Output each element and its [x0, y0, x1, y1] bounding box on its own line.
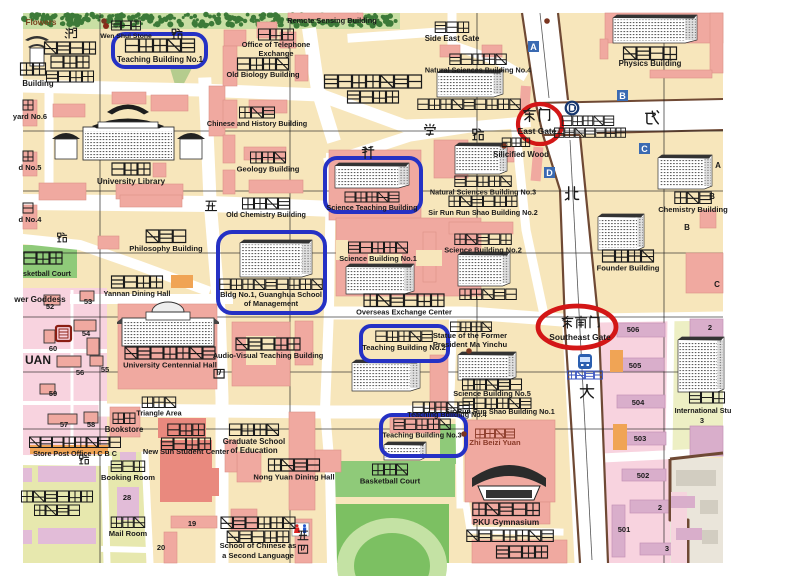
svg-text:Bldg No.1, Guanghua School: Bldg No.1, Guanghua School: [220, 290, 322, 299]
svg-text:A: A: [715, 161, 721, 170]
svg-text:2: 2: [658, 503, 662, 512]
svg-text:Science Teaching Building: Science Teaching Building: [327, 203, 418, 212]
svg-text:Exchange: Exchange: [259, 49, 294, 58]
svg-text:59: 59: [49, 389, 57, 398]
svg-text:502: 502: [637, 471, 650, 480]
svg-text:Booking Room: Booking Room: [101, 473, 155, 482]
svg-text:of Education: of Education: [230, 446, 277, 455]
svg-text:Office of Telephone: Office of Telephone: [242, 40, 310, 49]
svg-text:Teaching Building No.3: Teaching Building No.3: [382, 431, 461, 440]
svg-text:52: 52: [46, 302, 54, 311]
svg-text:Building: Building: [22, 79, 53, 88]
svg-text:C: C: [641, 144, 648, 154]
svg-text:28: 28: [123, 493, 131, 502]
svg-text:Overseas Exchange Center: Overseas Exchange Center: [356, 308, 452, 317]
svg-text:Basketball Court: Basketball Court: [360, 476, 421, 485]
svg-text:Bookstore: Bookstore: [105, 425, 144, 434]
svg-text:Science Building No.1: Science Building No.1: [339, 254, 417, 263]
svg-text:East Gate: East Gate: [518, 126, 557, 136]
svg-text:Old Chemistry Building: Old Chemistry Building: [226, 210, 306, 219]
svg-text:55: 55: [101, 365, 109, 374]
svg-text:d No.4: d No.4: [19, 215, 43, 224]
svg-text:Teaching Building No.4: Teaching Building No.4: [407, 410, 486, 419]
svg-text:Science Building No.2: Science Building No.2: [444, 246, 522, 255]
svg-text:53: 53: [84, 297, 92, 306]
svg-text:University Library: University Library: [97, 177, 166, 186]
svg-text:Teaching Building No.1: Teaching Building No.1: [117, 55, 204, 64]
svg-text:Remote Sensing Building: Remote Sensing Building: [287, 16, 377, 25]
svg-text:Chinese and History Building: Chinese and History Building: [207, 119, 307, 128]
svg-text:19: 19: [188, 519, 196, 528]
svg-text:Natural Sciences Building No.4: Natural Sciences Building No.4: [425, 66, 531, 75]
svg-text:2: 2: [708, 323, 712, 332]
svg-text:Graduate School: Graduate School: [223, 437, 285, 446]
svg-text:56: 56: [76, 368, 84, 377]
svg-text:Sir Run Run Shao Building No.2: Sir Run Run Shao Building No.2: [428, 208, 537, 217]
svg-text:sketball Court: sketball Court: [23, 269, 72, 278]
svg-text:3: 3: [665, 544, 669, 553]
svg-text:yard No.6: yard No.6: [13, 112, 47, 121]
svg-text:3: 3: [700, 416, 704, 425]
svg-text:University Centennial Hall: University Centennial Hall: [123, 360, 217, 369]
svg-text:B: B: [619, 91, 626, 101]
svg-text:Nong Yuan Dining Hall: Nong Yuan Dining Hall: [253, 472, 334, 481]
svg-text:501: 501: [618, 525, 631, 534]
svg-text:Science Building No.5: Science Building No.5: [453, 389, 531, 398]
svg-text:International Stu: International Stu: [675, 406, 732, 415]
svg-text:20: 20: [157, 543, 165, 552]
svg-text:Mail Room: Mail Room: [109, 529, 148, 538]
svg-text:UAN: UAN: [25, 353, 51, 367]
svg-text:of Management: of Management: [244, 299, 299, 308]
svg-text:Flowers: Flowers: [26, 18, 57, 27]
svg-text:wer Goddess: wer Goddess: [13, 295, 66, 304]
svg-text:Audio-Visual Teaching Building: Audio-Visual Teaching Building: [213, 351, 324, 360]
svg-text:Physics Building: Physics Building: [619, 59, 682, 68]
svg-text:New Sun Student Center: New Sun Student Center: [143, 447, 229, 456]
svg-text:Founder Building: Founder Building: [597, 263, 660, 272]
svg-text:PKU Gymnasium: PKU Gymnasium: [473, 518, 539, 527]
svg-text:Silicified Wood: Silicified Wood: [493, 150, 549, 159]
svg-text:C: C: [714, 280, 720, 289]
svg-text:Zhi Beizi Yuan: Zhi Beizi Yuan: [469, 438, 521, 447]
svg-text:57: 57: [60, 420, 68, 429]
svg-text:Southeast Gate: Southeast Gate: [549, 332, 611, 342]
svg-text:B: B: [684, 223, 690, 232]
svg-text:58: 58: [87, 420, 95, 429]
svg-text:Teaching Building No.2: Teaching Building No.2: [362, 343, 446, 352]
svg-text:506: 506: [627, 325, 640, 334]
svg-text:Yannan Dining Hall: Yannan Dining Hall: [104, 289, 171, 298]
svg-text:Geology Building: Geology Building: [237, 164, 300, 173]
svg-text:d No.5: d No.5: [19, 163, 42, 172]
svg-text:Philosophy Building: Philosophy Building: [129, 244, 203, 253]
svg-text:Chemistry Building: Chemistry Building: [658, 205, 728, 214]
svg-text:Natural Sciences Building No.3: Natural Sciences Building No.3: [430, 188, 536, 197]
svg-text:505: 505: [629, 361, 642, 370]
svg-text:504: 504: [632, 398, 645, 407]
svg-text:Side East Gate: Side East Gate: [425, 34, 480, 43]
svg-text:a Second Language: a Second Language: [222, 551, 294, 560]
svg-text:60: 60: [49, 344, 57, 353]
svg-text:Triangle Area: Triangle Area: [136, 409, 182, 418]
svg-text:Old Biology Building: Old Biology Building: [226, 70, 300, 79]
svg-text:Store Post Office I C B C: Store Post Office I C B C: [33, 449, 117, 458]
svg-text:School of Chinese as: School of Chinese as: [220, 541, 297, 550]
svg-text:D: D: [546, 168, 553, 178]
svg-text:54: 54: [82, 329, 91, 338]
svg-text:A: A: [530, 42, 537, 52]
svg-text:Statue of the Former: Statue of the Former: [433, 331, 507, 340]
svg-text:503: 503: [634, 434, 647, 443]
